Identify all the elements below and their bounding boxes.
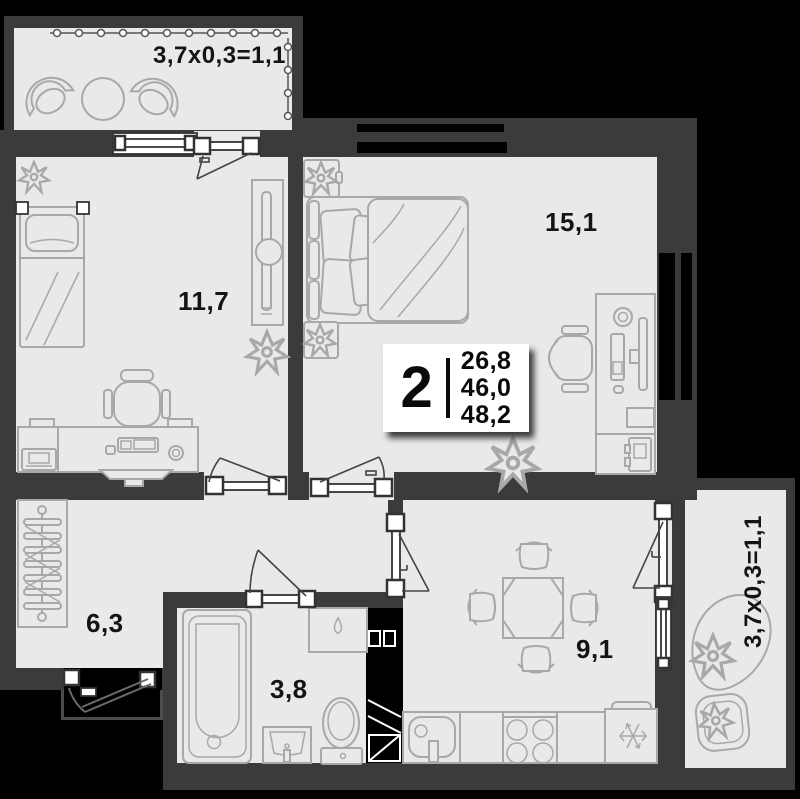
floor-plan: 3,7x0,3=1,1 11,7 15,1 6,3 3,8 9,1 3,7x0,… bbox=[0, 0, 800, 799]
dining-table bbox=[503, 578, 563, 638]
window-balcony-top bbox=[113, 133, 197, 154]
single-bed bbox=[16, 202, 89, 347]
area-total: 46,0 bbox=[461, 375, 512, 402]
room-label-bedroom-left: 11,7 bbox=[178, 286, 229, 317]
office-chair-right bbox=[549, 326, 592, 392]
door-bedroom-left bbox=[206, 458, 286, 494]
door-balcony-kitchen bbox=[633, 503, 672, 602]
window-kitchen-balcony bbox=[656, 597, 671, 670]
balcony-armchair-left bbox=[17, 69, 77, 123]
printer-right bbox=[596, 434, 655, 474]
door-balcony-top bbox=[194, 138, 259, 179]
kitchen-sink bbox=[409, 717, 455, 762]
double-bed bbox=[307, 197, 468, 323]
nightstand-top bbox=[304, 160, 342, 197]
balcony-coffee-table bbox=[82, 78, 124, 120]
room-label-bathroom: 3,8 bbox=[270, 674, 308, 705]
room-label-bedroom-right: 15,1 bbox=[545, 207, 598, 238]
dining-chair-bottom bbox=[518, 646, 554, 673]
bathtub bbox=[183, 610, 251, 763]
printer-left bbox=[22, 449, 56, 470]
info-divider bbox=[446, 358, 450, 418]
room-label-kitchen: 9,1 bbox=[576, 634, 614, 665]
balcony-armchair-right bbox=[126, 70, 186, 124]
fridge bbox=[605, 702, 657, 763]
dining-chair-top bbox=[516, 543, 552, 570]
stove bbox=[503, 712, 557, 763]
door-bedroom-right bbox=[311, 457, 392, 496]
apartment-info-box: 2 26,8 46,0 48,2 bbox=[383, 344, 529, 432]
office-chair-left bbox=[104, 370, 170, 426]
plant-bedroom-left-corner bbox=[19, 162, 49, 192]
dining-chair-right bbox=[571, 590, 598, 626]
plant-pot bbox=[694, 692, 750, 752]
desk-right bbox=[596, 294, 655, 434]
nightstand-bottom bbox=[304, 322, 338, 358]
room-label-balcony-top: 3,7x0,3=1,1 bbox=[153, 42, 286, 70]
rooms-count: 2 bbox=[401, 359, 433, 417]
area-living: 26,8 bbox=[461, 348, 512, 375]
toilet bbox=[321, 698, 362, 764]
door-kitchen bbox=[387, 514, 429, 597]
plant-bedroom-right bbox=[488, 438, 537, 487]
room-label-hallway: 6,3 bbox=[86, 608, 124, 639]
area-full: 48,2 bbox=[461, 402, 512, 429]
wardrobe bbox=[252, 180, 283, 325]
washing-machine bbox=[309, 608, 367, 652]
room-label-balcony-right: 3,7x0,3=1,1 bbox=[740, 515, 768, 648]
bathroom-sink bbox=[263, 727, 311, 763]
coat-rack bbox=[18, 500, 67, 627]
plant-bedroom-left bbox=[247, 332, 287, 372]
door-entrance bbox=[64, 670, 155, 712]
vent-shaft-hatching bbox=[368, 631, 401, 761]
dining-chair-left bbox=[469, 589, 496, 625]
door-bathroom bbox=[246, 550, 315, 607]
area-values: 26,8 46,0 48,2 bbox=[461, 348, 512, 429]
